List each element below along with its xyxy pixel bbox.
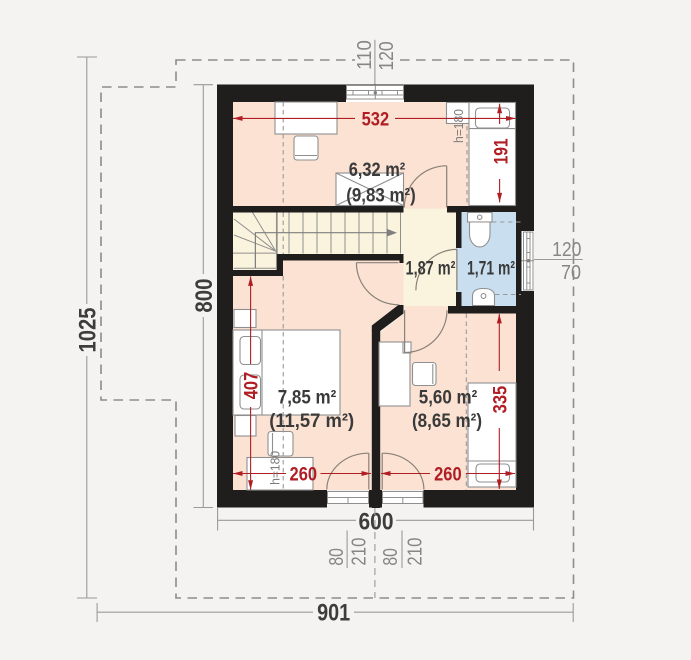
svg-text:800: 800: [191, 279, 218, 313]
svg-text:260: 260: [290, 463, 318, 485]
svg-text:120: 120: [376, 41, 398, 70]
svg-text:(8,65 m²): (8,65 m²): [412, 411, 482, 432]
svg-text:7,85 m²: 7,85 m²: [278, 388, 337, 409]
svg-text:1025: 1025: [75, 308, 102, 353]
svg-text:1,71 m²: 1,71 m²: [467, 259, 515, 280]
svg-text:h=180: h=180: [451, 109, 466, 143]
svg-text:210: 210: [404, 538, 426, 566]
svg-text:407: 407: [241, 372, 263, 400]
svg-text:901: 901: [317, 600, 350, 627]
svg-text:6,32 m²: 6,32 m²: [349, 160, 406, 181]
svg-text:1,87 m²: 1,87 m²: [406, 259, 456, 280]
svg-text:80: 80: [380, 548, 402, 566]
svg-text:70: 70: [561, 262, 581, 284]
svg-text:532: 532: [362, 108, 390, 130]
svg-text:5,60 m²: 5,60 m²: [419, 388, 478, 409]
svg-text:110: 110: [354, 40, 376, 70]
svg-text:600: 600: [359, 508, 394, 535]
svg-text:120: 120: [552, 239, 581, 261]
svg-text:210: 210: [349, 538, 371, 566]
svg-text:80: 80: [326, 548, 348, 566]
svg-text:(11,57 m²): (11,57 m²): [269, 411, 354, 432]
svg-text:260: 260: [434, 463, 462, 485]
svg-text:h=180: h=180: [268, 451, 283, 485]
svg-text:(9,83 m²): (9,83 m²): [346, 186, 416, 207]
svg-text:191: 191: [491, 138, 513, 164]
svg-text:335: 335: [489, 386, 511, 414]
